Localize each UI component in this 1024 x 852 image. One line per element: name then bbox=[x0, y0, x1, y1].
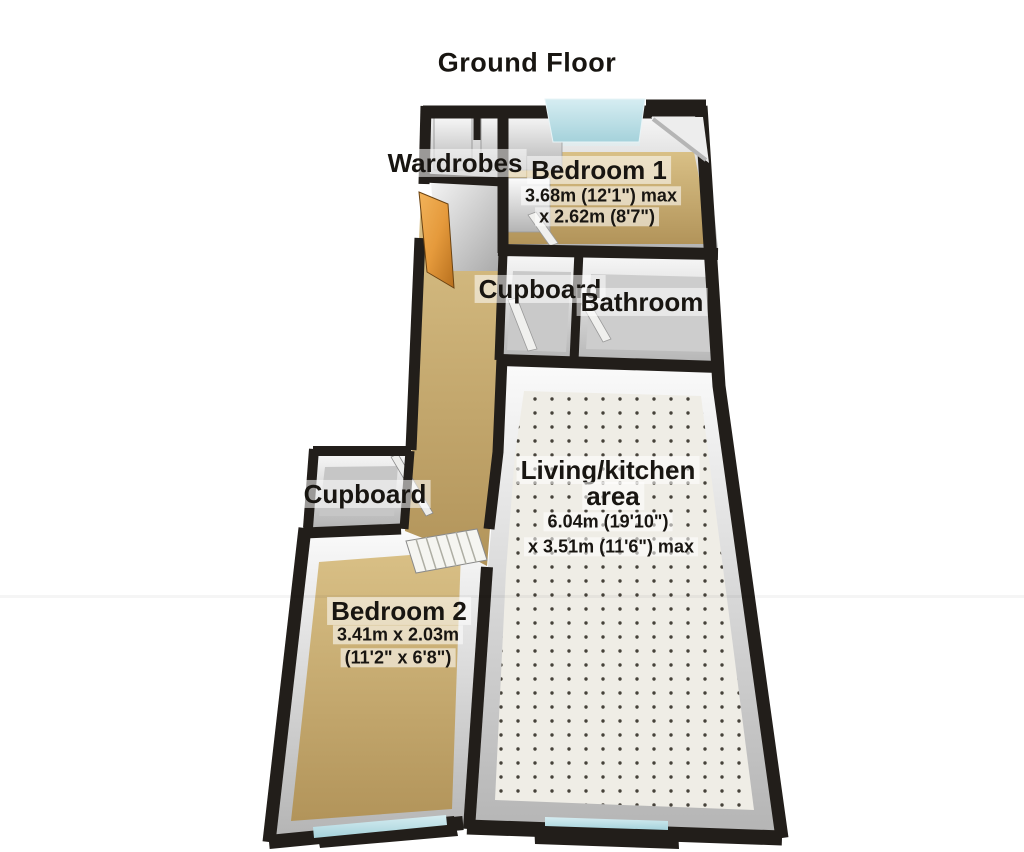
floorplan-drawing bbox=[0, 0, 1024, 852]
wall-living-top bbox=[501, 360, 719, 367]
bedroom1-dim-2: x 2.62m (8'7") bbox=[535, 207, 659, 226]
wardrobes-label: Wardrobes bbox=[384, 149, 527, 177]
bedroom1-dim-1: 3.68m (12'1") max bbox=[521, 186, 681, 205]
bedroom2-dim-2: (11'2" x 6'8") bbox=[341, 648, 456, 667]
scan-artifact-line bbox=[0, 595, 1024, 598]
cupboard2-label: Cupboard bbox=[300, 480, 431, 508]
wall-cupboard1-left bbox=[499, 253, 503, 360]
bedroom2-dim-1: 3.41m x 2.03m bbox=[333, 625, 463, 644]
living-dim-1: 6.04m (19'10") bbox=[544, 512, 673, 531]
living-dim-2: x 3.51m (11'6") max bbox=[524, 537, 698, 556]
living-label-line2: area bbox=[582, 482, 644, 510]
wall-bedroom1-bottom bbox=[498, 250, 718, 254]
wall-wardrobes-bottom bbox=[424, 178, 503, 182]
bedroom2-floor bbox=[291, 551, 461, 821]
bedroom1-label: Bedroom 1 bbox=[527, 156, 671, 184]
living-label-line1: Living/kitchen bbox=[517, 456, 700, 484]
wall-top-bedroom2 bbox=[304, 529, 401, 533]
floorplan-page: Ground Floor Wardrobes Bedroom 1 3.68m (… bbox=[0, 0, 1024, 852]
bedroom2-label: Bedroom 2 bbox=[327, 597, 471, 625]
bathroom-label: Bathroom bbox=[577, 288, 708, 316]
page-title: Ground Floor bbox=[434, 48, 620, 77]
bedroom1-window bbox=[545, 99, 645, 142]
